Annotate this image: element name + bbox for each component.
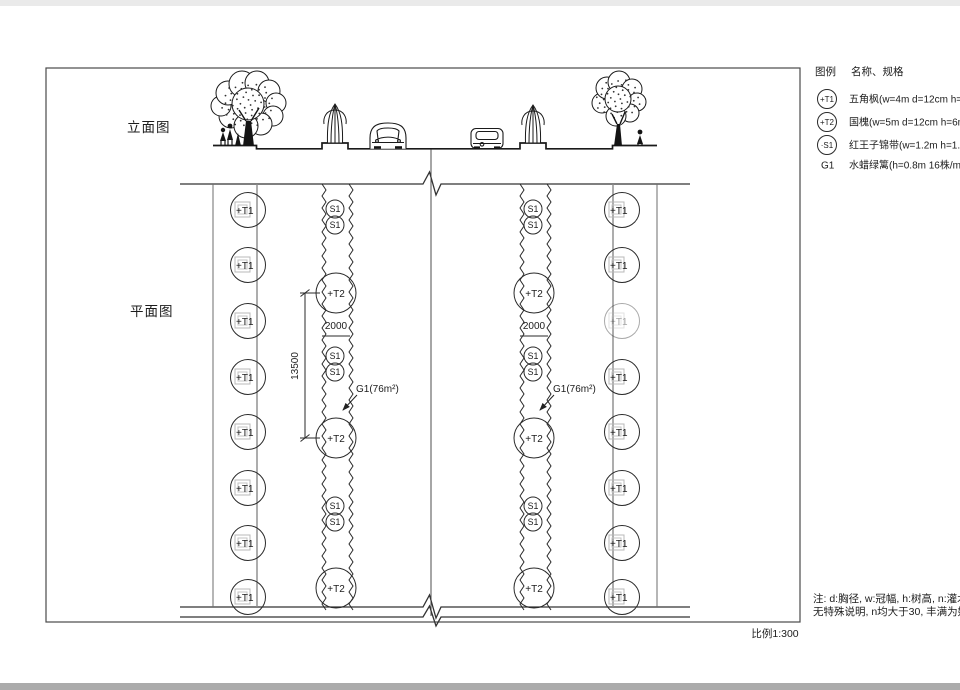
g1-area-label: G1(76m²) <box>553 384 596 395</box>
drawing-border <box>46 68 800 622</box>
dim-2000-label: 2000 <box>325 321 348 332</box>
legend-row-g1: G1 水蜡绿篱(h=0.8m 16株/m²) <box>821 159 960 172</box>
plan-s1-right <box>524 200 542 531</box>
plan-shrub-s1 <box>326 363 344 381</box>
legend-s1-name: 红王子锦带(w=1.2m h=1.5m) <box>849 139 960 152</box>
legend-t2-name: 国槐(w=5m d=12cm h=6m) <box>849 116 960 129</box>
g1-area-label: G1(76m²) <box>356 384 399 395</box>
dim-2000-label: 2000 <box>523 321 546 332</box>
plan-tree-t1 <box>231 248 266 283</box>
notes-line-2: 无特殊说明, n均大于30, 丰满为好 <box>813 605 960 618</box>
plan-shrub-s1 <box>524 363 542 381</box>
page-bottom-strip <box>0 683 960 690</box>
plan-shrub-s1 <box>524 497 542 515</box>
plan-shrub-s1 <box>326 200 344 218</box>
plan-shrub-s1 <box>524 513 542 531</box>
plan-tree-t1 <box>231 304 266 339</box>
hedge-right-edge-a <box>520 184 524 610</box>
plan-shrub-s1 <box>326 497 344 515</box>
elevation-ground-line <box>213 143 657 149</box>
plan-t1-row-right <box>605 193 640 615</box>
legend-g1-name: 水蜡绿篱(h=0.8m 16株/m²) <box>849 159 960 172</box>
plan-title: 平面图 <box>130 304 174 319</box>
g1-callout-right: G1(76m²) <box>540 384 596 410</box>
plan-tree-t1 <box>605 526 640 561</box>
plan-view: 13500 2000 2000 G1(76m²) G1(76m²) <box>180 149 690 626</box>
elevation-pedestrian-right <box>637 130 643 146</box>
plan-tree-t1 <box>605 471 640 506</box>
plan-tree-t1 <box>605 248 640 283</box>
legend-spec-header: 名称、规格 <box>851 65 904 78</box>
plan-s1-left <box>326 200 344 531</box>
plan-shrub-s1 <box>326 216 344 234</box>
plan-tree-t1 <box>231 415 266 450</box>
elevation-tree-right <box>592 71 646 146</box>
hedge-left-edge-a <box>322 184 326 610</box>
plan-tree-t1 <box>231 580 266 615</box>
legend-row-t2: +T2 国槐(w=5m d=12cm h=6m) <box>818 113 960 132</box>
plan-shrub-s1 <box>326 347 344 365</box>
scale-label: 比例1:300 <box>751 627 798 640</box>
elevation-view <box>211 71 657 149</box>
dim-13500-label: 13500 <box>290 352 301 380</box>
plan-tree-t1-faded <box>605 304 640 339</box>
plan-tree-t2 <box>316 568 356 608</box>
plan-t1-row-left <box>231 193 266 615</box>
plan-tree-t2 <box>514 568 554 608</box>
elevation-title: 立面图 <box>127 120 171 135</box>
legend-t1-symbol: +T1 <box>820 95 835 104</box>
plan-shrub-s1 <box>326 513 344 531</box>
legend: 图例 名称、规格 +T1 五角枫(w=4m d=12cm h=6m) +T2 国… <box>815 65 960 172</box>
plan-tree-t1 <box>605 360 640 395</box>
legend-s1-symbol: ·S1 <box>821 141 834 150</box>
drawing-page: +T1 S1 +T2 立面图 平面图 <box>0 0 960 690</box>
plan-tree-t1 <box>231 471 266 506</box>
plan-tree-t1 <box>231 526 266 561</box>
elevation-car-front <box>370 123 406 149</box>
elevation-shrub-left <box>324 104 346 143</box>
legend-t2-symbol: +T2 <box>820 118 835 127</box>
notes: 注: d:胸径, w:冠幅, h:树高, n:灌木枝条数 无特殊说明, n均大于… <box>813 592 960 618</box>
notes-line-1: 注: d:胸径, w:冠幅, h:树高, n:灌木枝条数 <box>813 592 960 605</box>
hedge-right-edge-b <box>547 184 551 610</box>
plan-shrub-s1 <box>524 216 542 234</box>
drawing-canvas: +T1 S1 +T2 立面图 平面图 <box>0 0 960 690</box>
page-top-strip <box>0 0 960 6</box>
legend-title: 图例 <box>815 65 836 78</box>
plan-tree-t1 <box>605 415 640 450</box>
legend-t1-name: 五角枫(w=4m d=12cm h=6m) <box>849 93 960 106</box>
plan-shrub-s1 <box>524 347 542 365</box>
legend-g1-symbol: G1 <box>821 161 835 172</box>
legend-row-s1: ·S1 红王子锦带(w=1.2m h=1.5m) <box>818 136 960 155</box>
elevation-car-rear <box>471 129 503 149</box>
elevation-shrub-right <box>522 105 544 143</box>
plan-tree-t1 <box>231 360 266 395</box>
legend-row-t1: +T1 五角枫(w=4m d=12cm h=6m) <box>818 90 960 109</box>
dimension-13500: 13500 <box>290 290 320 442</box>
plan-tree-t1 <box>231 193 266 228</box>
plan-tree-t1 <box>605 580 640 615</box>
plan-tree-t1 <box>605 193 640 228</box>
plan-shrub-s1 <box>524 200 542 218</box>
hedge-left-edge-b <box>349 184 353 610</box>
